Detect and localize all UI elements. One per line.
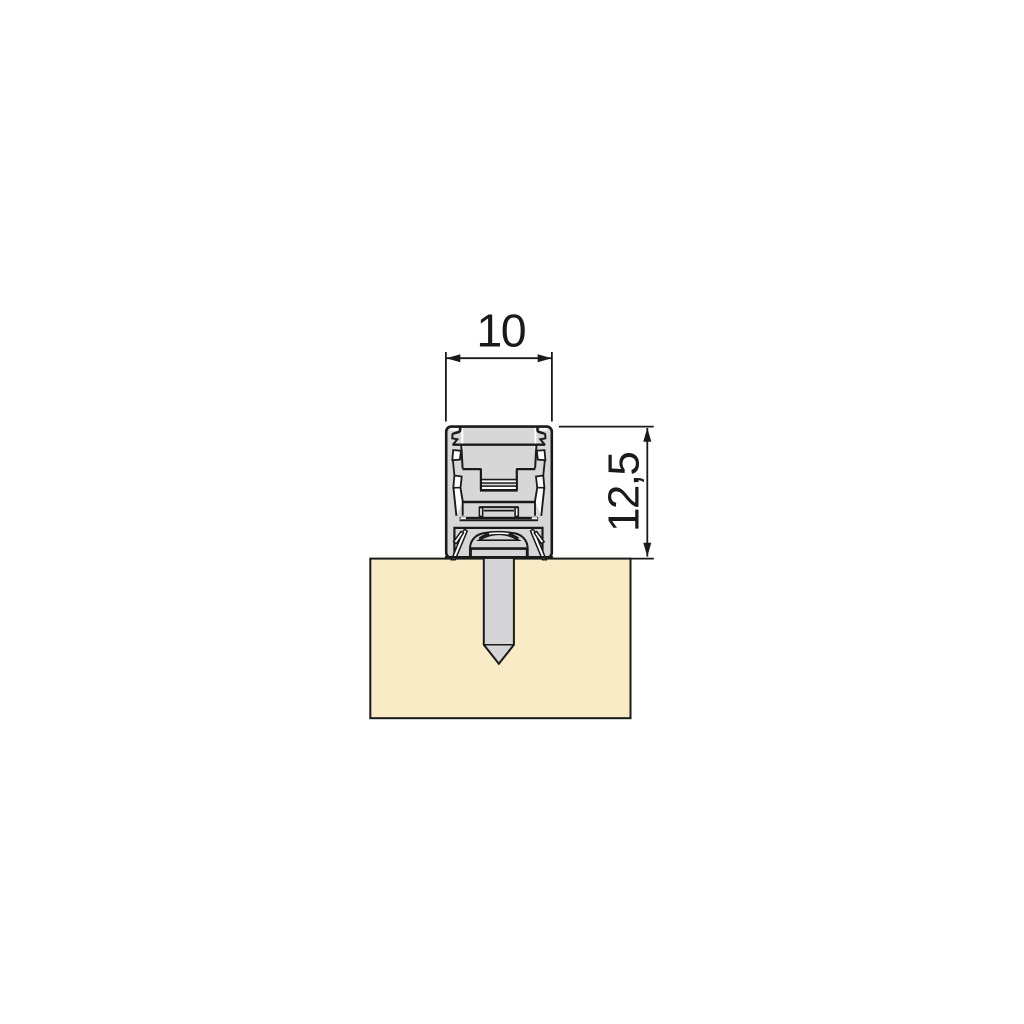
- svg-text:10: 10: [476, 305, 525, 357]
- svg-text:12,5: 12,5: [599, 453, 648, 532]
